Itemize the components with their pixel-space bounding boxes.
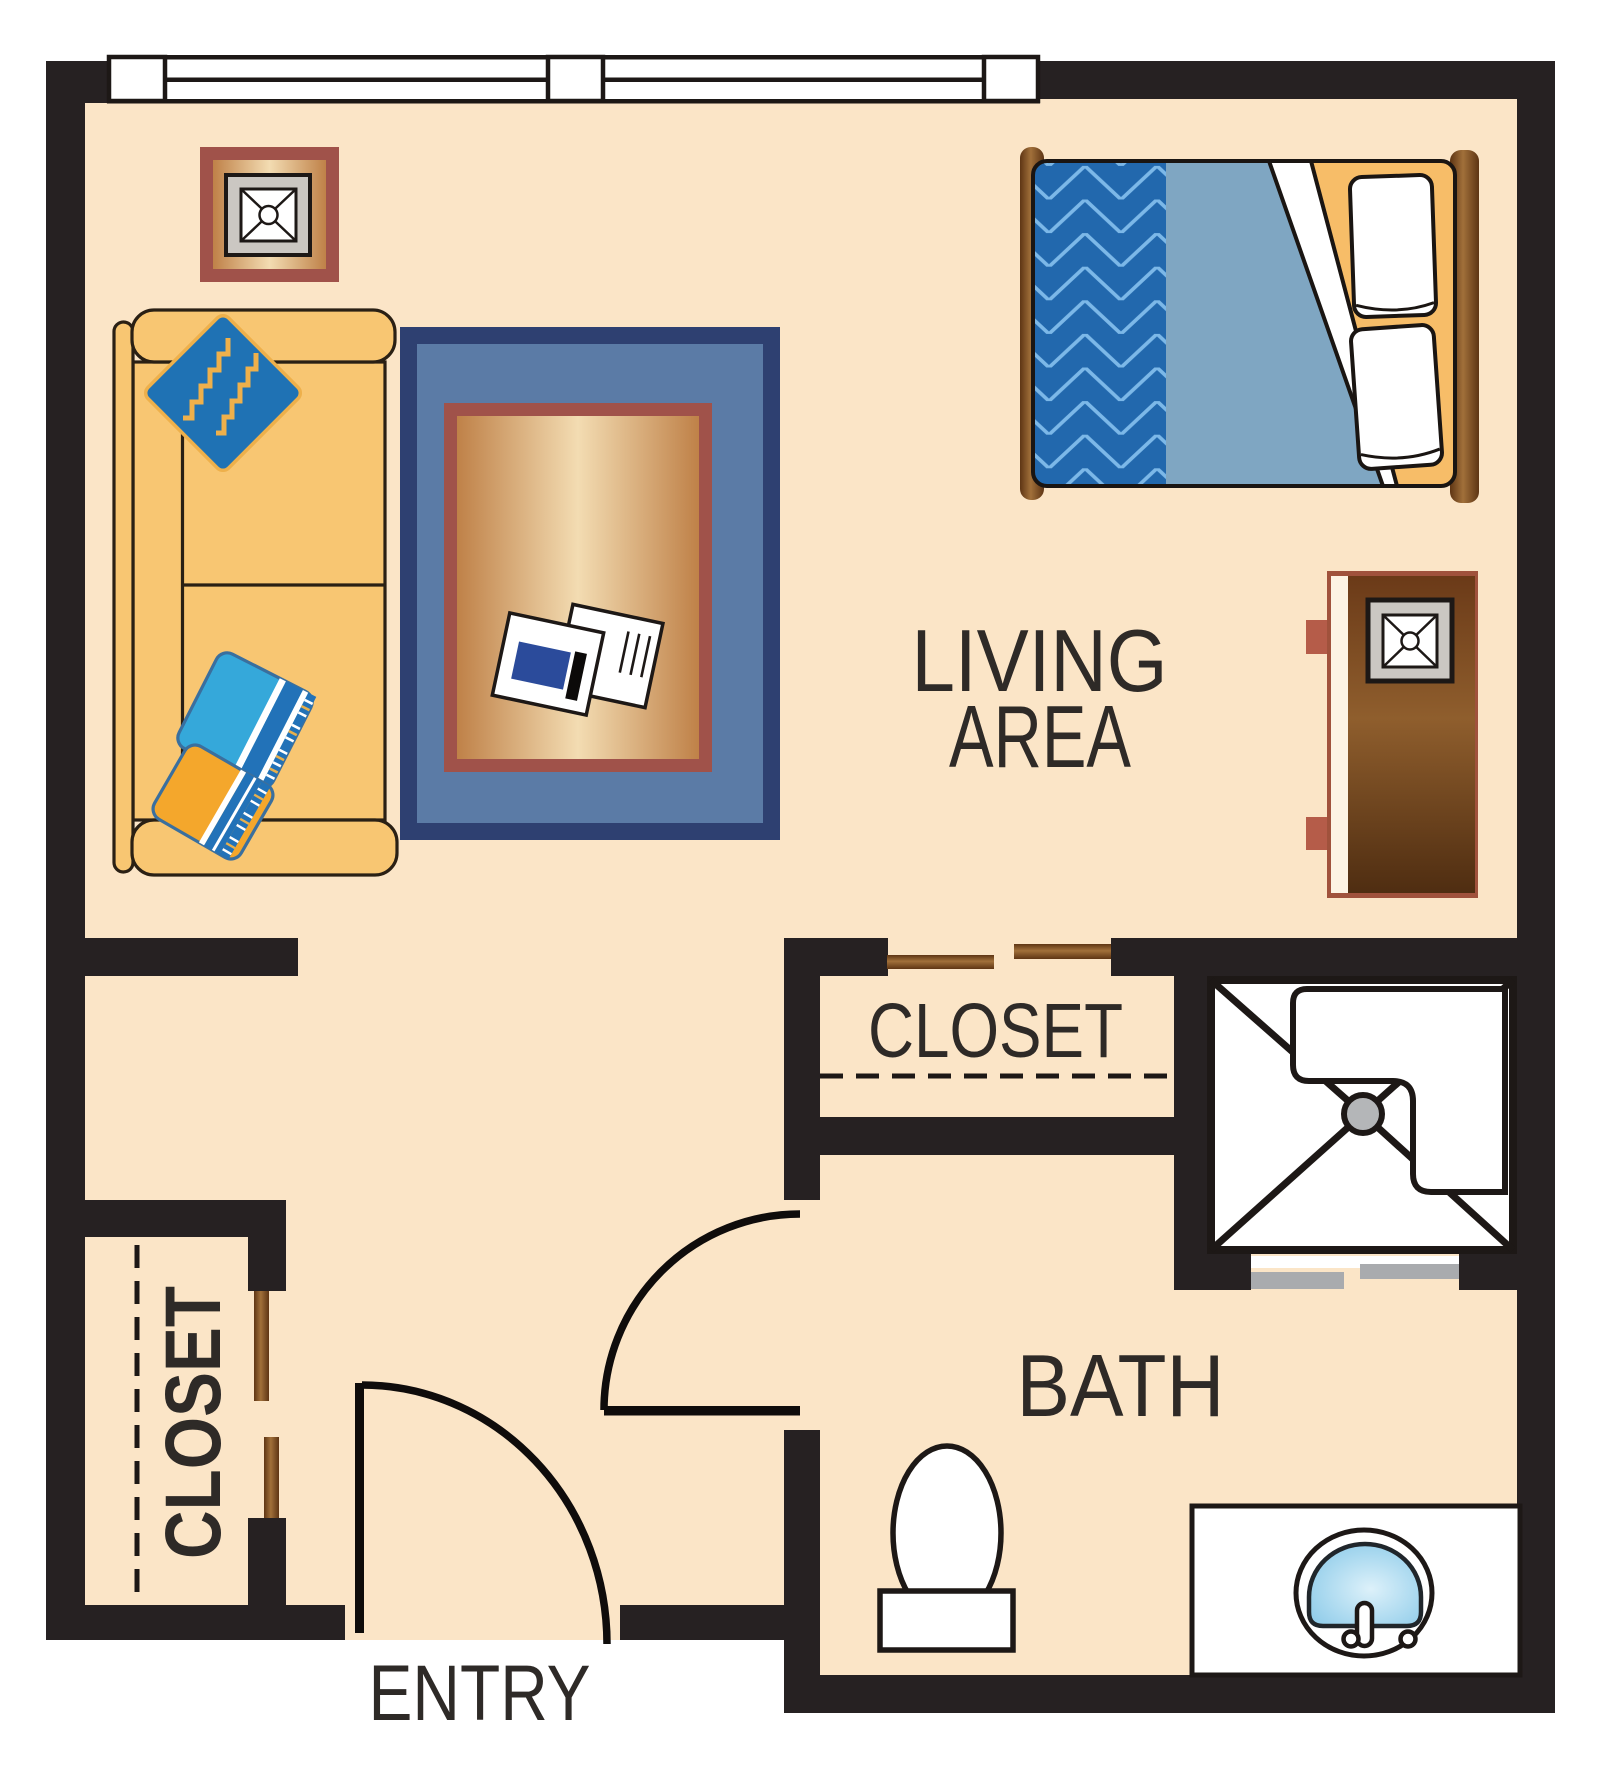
- svg-text:AREA: AREA: [949, 687, 1131, 786]
- svg-text:CLOSET: CLOSET: [868, 988, 1123, 1074]
- svg-text:ENTRY: ENTRY: [369, 1648, 591, 1737]
- svg-text:CLOSET: CLOSET: [148, 1286, 237, 1559]
- svg-text:BATH: BATH: [1017, 1336, 1225, 1435]
